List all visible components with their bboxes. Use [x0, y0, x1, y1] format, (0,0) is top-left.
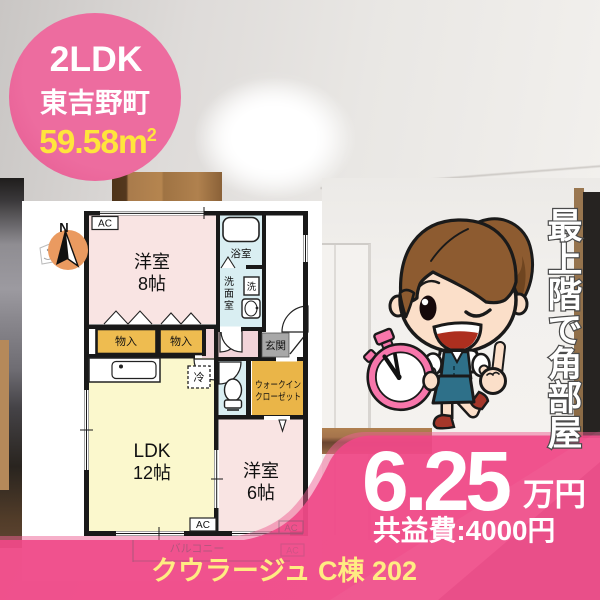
- svg-text:玄関: 玄関: [265, 339, 286, 352]
- svg-text:室: 室: [224, 299, 234, 312]
- svg-text:AC: AC: [98, 219, 112, 230]
- svg-text:AC: AC: [196, 520, 210, 531]
- svg-text:LDK: LDK: [134, 441, 171, 462]
- svg-text:洗: 洗: [224, 276, 234, 288]
- svg-text:角: 角: [548, 346, 583, 384]
- svg-text:冷: 冷: [194, 371, 205, 384]
- svg-text:8帖: 8帖: [138, 274, 166, 294]
- svg-text:物入: 物入: [170, 334, 192, 348]
- svg-text:12帖: 12帖: [133, 463, 171, 483]
- svg-text:6帖: 6帖: [247, 483, 275, 503]
- svg-text:部: 部: [548, 380, 583, 418]
- svg-text:面: 面: [224, 289, 234, 300]
- svg-text:クローゼット: クローゼット: [255, 391, 301, 403]
- svg-text:屋: 屋: [548, 415, 583, 453]
- svg-text:洋室: 洋室: [243, 461, 279, 481]
- svg-text:最: 最: [548, 208, 583, 246]
- svg-text:上: 上: [548, 242, 583, 280]
- svg-text:物入: 物入: [115, 334, 137, 348]
- svg-text:洋室: 洋室: [134, 252, 170, 272]
- svg-text:N: N: [59, 220, 68, 235]
- svg-text:ウォークイン: ウォークイン: [255, 380, 301, 391]
- svg-text:洗: 洗: [247, 281, 257, 293]
- svg-text:浴室: 浴室: [231, 247, 252, 260]
- svg-text:階: 階: [548, 277, 583, 315]
- svg-text:で: で: [548, 312, 583, 350]
